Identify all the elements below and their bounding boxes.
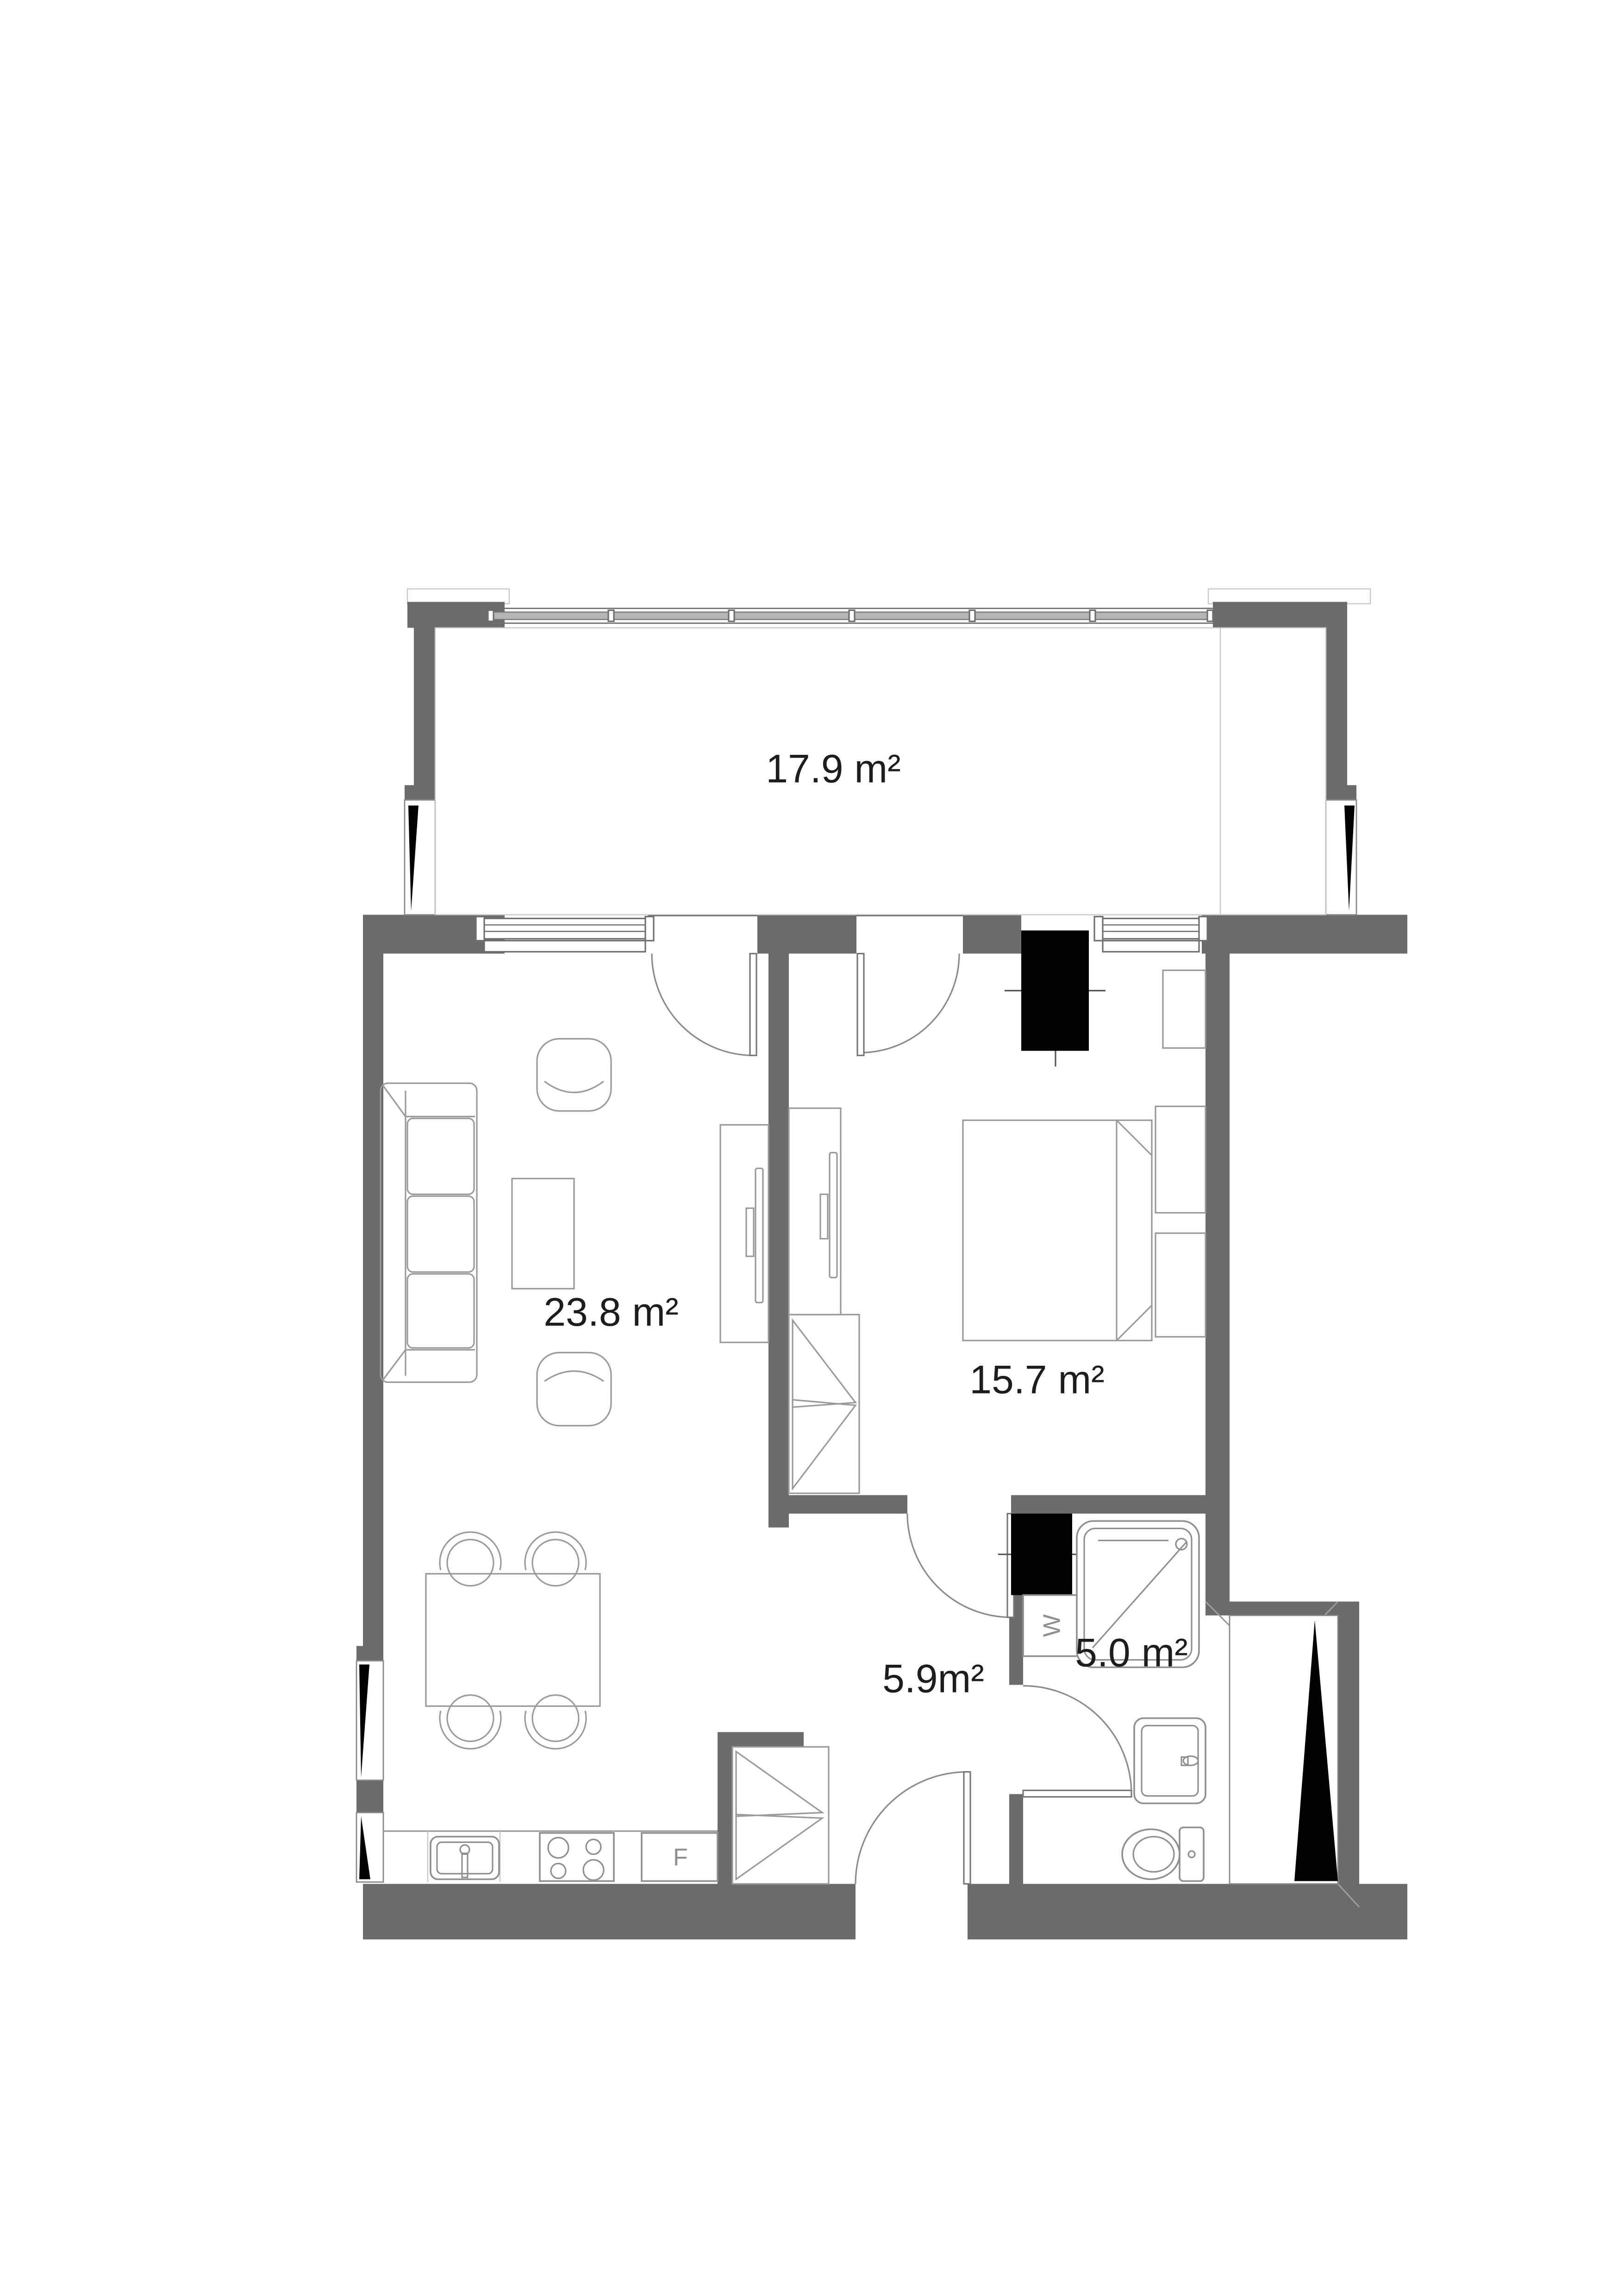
wall-hall-stub-left xyxy=(718,1747,732,1884)
stove xyxy=(540,1833,614,1881)
wall-top-pier-2 xyxy=(963,915,1021,954)
nightstand-bottom xyxy=(1156,1233,1206,1337)
dining-chair xyxy=(525,1532,586,1586)
dining-chair xyxy=(440,1695,501,1749)
balcony-area-label: 17.9 m² xyxy=(766,747,901,791)
wall-balcony-left xyxy=(414,607,435,792)
railing-joint xyxy=(488,610,493,622)
kitchen-sink xyxy=(431,1837,499,1879)
bedroom xyxy=(789,931,1206,1493)
bathroom-sink xyxy=(1134,1718,1206,1804)
parapet-outline-left xyxy=(407,589,509,604)
floor-plan-drawing: F xyxy=(0,0,1624,2296)
bedroom-closet xyxy=(789,1315,859,1493)
living-room-area-label: 23.8 m² xyxy=(543,1290,679,1335)
hallway-area-label: 5.9m² xyxy=(882,1657,984,1701)
washing-machine-label: W xyxy=(1039,1614,1066,1637)
bedroom-dresser-tv xyxy=(789,1108,841,1315)
living-room xyxy=(381,1039,768,1426)
tv-console xyxy=(720,1125,768,1343)
double-bed xyxy=(963,1120,1152,1341)
living-balcony-door xyxy=(652,954,756,1056)
bedroom-shelf xyxy=(1163,971,1206,1048)
wall-top-right-block xyxy=(1202,915,1407,954)
bathroom-area-label: 5.0 m² xyxy=(1075,1631,1188,1675)
wall-partition-living-bedroom xyxy=(768,954,789,1528)
wall-left-bay-cap xyxy=(356,1646,383,1661)
dining-chair xyxy=(525,1695,586,1749)
living-room-window xyxy=(476,917,654,952)
bedroom-window xyxy=(1094,917,1207,952)
armchair-pouf-top xyxy=(537,1039,611,1111)
fridge-label: F xyxy=(673,1844,688,1871)
wall-bottom-right xyxy=(968,1884,1407,1940)
bathroom-door xyxy=(1023,1686,1131,1797)
dining-table xyxy=(426,1574,600,1706)
bedroom-balcony-door xyxy=(857,954,959,1056)
dining-chair xyxy=(440,1532,501,1586)
railing-joint xyxy=(849,610,855,622)
wall-top-center-pier xyxy=(757,915,856,954)
hallway-cabinet xyxy=(732,1747,829,1884)
armchair-pouf-bottom xyxy=(537,1353,611,1426)
nightstand-top xyxy=(1156,1107,1206,1213)
railing-joint xyxy=(1090,610,1095,622)
floor-plan-page: F xyxy=(0,0,1624,2296)
bathroom: W xyxy=(998,1514,1206,1881)
wall-bottom-left xyxy=(363,1884,856,1940)
wall-hall-stub-top xyxy=(718,1732,804,1747)
bedroom-hallway-door xyxy=(907,1514,1014,1618)
wall-bathroom-left-lower xyxy=(1009,1794,1023,1884)
entrance-door xyxy=(856,1772,970,1884)
toilet xyxy=(1122,1828,1204,1881)
bedroom-area-label: 15.7 m² xyxy=(969,1358,1105,1402)
parapet-outline-right xyxy=(1208,589,1370,604)
wall-balcony-left-bay-cap xyxy=(405,785,435,800)
wall-right-exterior xyxy=(1206,954,1230,1602)
wall-bedroom-bottom-left xyxy=(768,1495,907,1514)
kitchen: F xyxy=(383,1532,829,1884)
fridge: F xyxy=(642,1833,718,1881)
wall-balcony-right xyxy=(1326,607,1347,792)
sofa xyxy=(381,1083,477,1382)
wall-balcony-right-bay-cap xyxy=(1326,785,1356,800)
wall-bay-right xyxy=(1338,1616,1359,1884)
wall-left-mid-block xyxy=(356,1780,383,1813)
coffee-table xyxy=(512,1179,574,1289)
railing-joint xyxy=(608,610,614,622)
wall-bedroom-bottom-right xyxy=(1011,1495,1206,1514)
railing-joint xyxy=(1207,610,1213,622)
railing-joint xyxy=(969,610,975,622)
railing-joint xyxy=(729,610,734,622)
